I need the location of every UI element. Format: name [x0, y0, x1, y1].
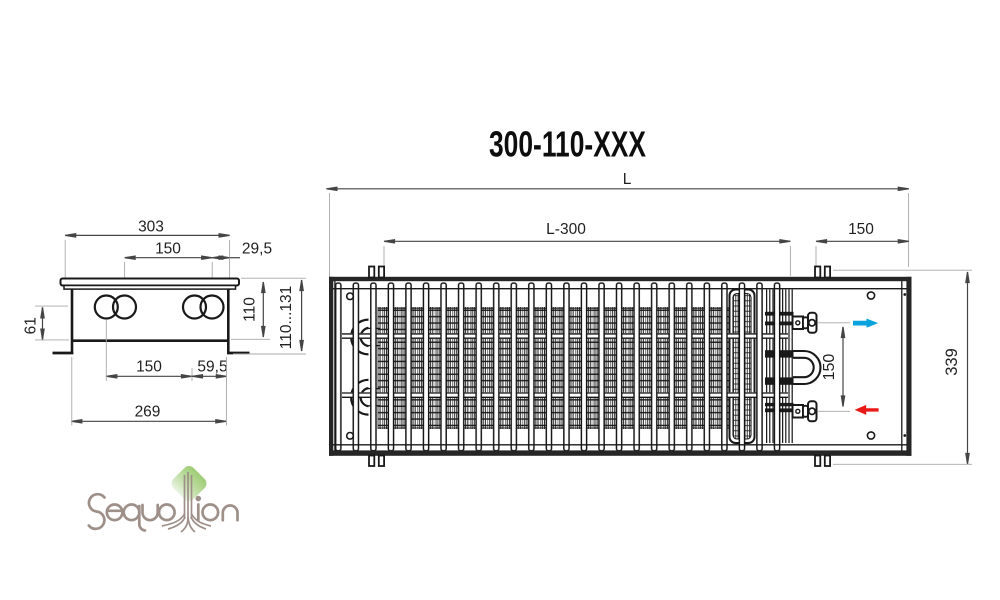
svg-text:L: L — [623, 171, 632, 188]
svg-text:110: 110 — [242, 297, 259, 322]
svg-text:61: 61 — [23, 317, 40, 334]
svg-text:150: 150 — [136, 359, 162, 376]
svg-text:303: 303 — [138, 219, 164, 236]
svg-text:59,5: 59,5 — [197, 359, 227, 376]
svg-text:339: 339 — [943, 348, 961, 376]
svg-text:300-110-XXX: 300-110-XXX — [489, 123, 646, 164]
svg-text:150: 150 — [155, 241, 181, 258]
svg-text:150: 150 — [821, 354, 838, 381]
svg-text:150: 150 — [848, 221, 874, 238]
svg-text:110...131: 110...131 — [278, 286, 295, 350]
svg-text:L-300: L-300 — [546, 221, 586, 238]
svg-text:29,5: 29,5 — [242, 241, 272, 258]
svg-text:269: 269 — [135, 404, 161, 421]
